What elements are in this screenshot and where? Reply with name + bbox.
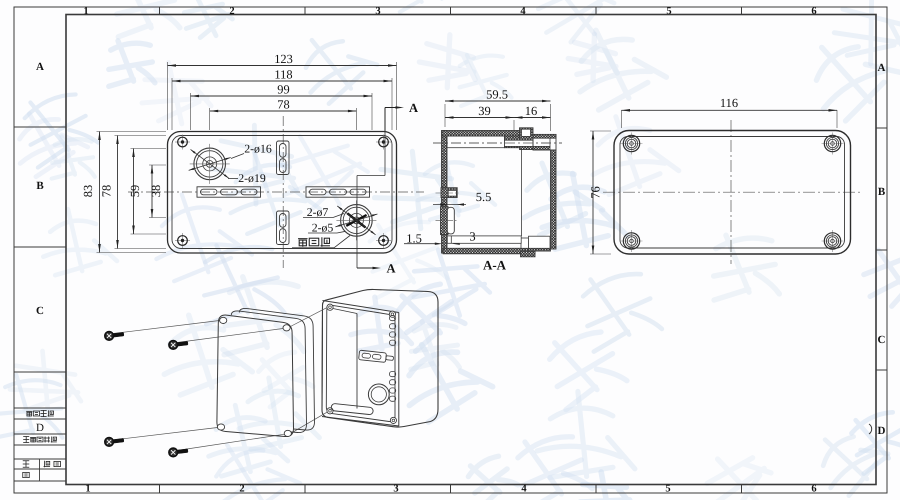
svg-text:2-ø7: 2-ø7 xyxy=(307,205,329,219)
svg-text:78: 78 xyxy=(100,185,114,197)
svg-text:6: 6 xyxy=(811,6,816,17)
svg-text:B: B xyxy=(36,180,44,192)
svg-text:4: 4 xyxy=(520,6,526,17)
svg-text:16: 16 xyxy=(525,104,538,118)
svg-text:116: 116 xyxy=(720,96,738,110)
svg-text:C: C xyxy=(36,305,44,317)
svg-text:A: A xyxy=(36,61,44,73)
svg-text:3: 3 xyxy=(375,6,380,17)
svg-text:A: A xyxy=(878,62,886,74)
svg-text:3: 3 xyxy=(469,230,475,244)
svg-text:A-A: A-A xyxy=(483,258,507,273)
svg-text:59: 59 xyxy=(128,185,142,197)
svg-text:1: 1 xyxy=(83,6,88,17)
svg-text:99: 99 xyxy=(277,83,289,97)
svg-text:78: 78 xyxy=(277,98,289,112)
svg-text:C: C xyxy=(878,334,886,346)
svg-text:2-ø19: 2-ø19 xyxy=(238,171,266,185)
svg-text:39: 39 xyxy=(478,104,491,118)
svg-text:D: D xyxy=(36,422,44,434)
svg-text:3: 3 xyxy=(393,484,398,495)
svg-text:123: 123 xyxy=(274,52,293,66)
svg-text:2: 2 xyxy=(229,6,234,17)
svg-text:2: 2 xyxy=(239,484,244,495)
svg-text:2-ø5: 2-ø5 xyxy=(312,221,334,235)
svg-text:2-ø16: 2-ø16 xyxy=(244,142,272,156)
svg-text:B: B xyxy=(878,186,886,198)
svg-text:5: 5 xyxy=(666,6,671,17)
svg-text:1: 1 xyxy=(85,484,90,495)
svg-text:5: 5 xyxy=(665,484,670,495)
svg-text:6: 6 xyxy=(811,484,816,495)
svg-text:59.5: 59.5 xyxy=(486,88,508,102)
svg-text:4: 4 xyxy=(521,484,527,495)
svg-text:83: 83 xyxy=(81,185,95,197)
svg-text:A: A xyxy=(409,101,418,115)
svg-text:5.5: 5.5 xyxy=(476,190,492,204)
svg-text:118: 118 xyxy=(274,68,292,82)
svg-text:38: 38 xyxy=(149,185,163,197)
svg-text:A: A xyxy=(386,262,395,276)
svg-text:D: D xyxy=(878,425,886,437)
svg-text:76: 76 xyxy=(589,186,603,199)
svg-text:1.5: 1.5 xyxy=(406,231,422,245)
